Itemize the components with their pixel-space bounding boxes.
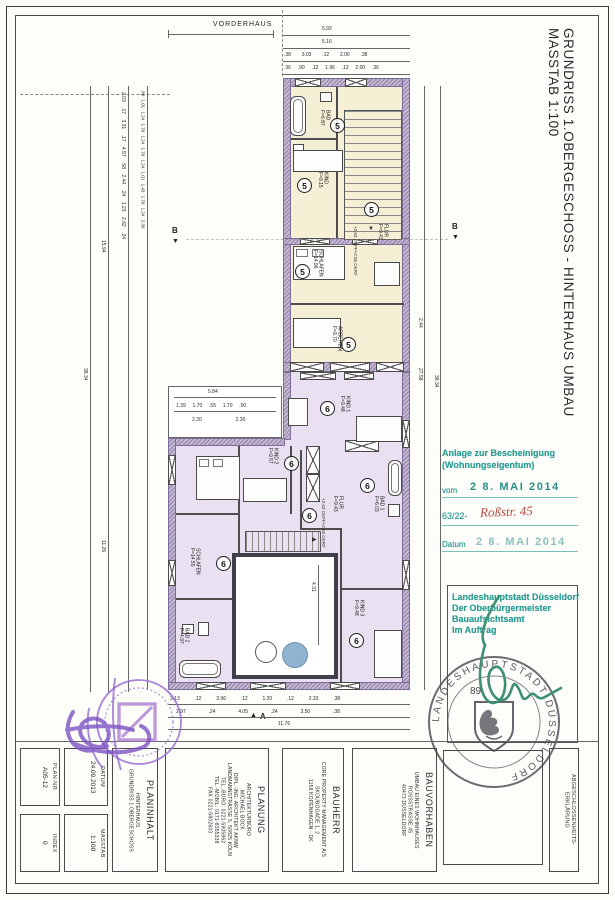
wall-hatch	[300, 372, 336, 380]
titleblock-empty-field	[443, 750, 543, 865]
unit-circle: 6	[349, 633, 364, 648]
dim-right-2: 27.58	[417, 368, 422, 381]
wc-symbol	[198, 622, 209, 636]
datum-date-stamp: 2 8. MAI 2014	[476, 536, 566, 548]
dim-line	[440, 86, 441, 690]
dim-line	[283, 74, 410, 75]
table-symbol	[255, 641, 277, 663]
datum-label: Datum	[442, 540, 466, 549]
bauherr-line: SKOUBOGADE 1, 2	[313, 751, 319, 869]
unit-circle: 5	[330, 118, 345, 133]
bauherr-label: BAUHERR	[331, 751, 341, 869]
stamp-rule	[442, 551, 578, 552]
erklaerung-line: ERKLÄRUNG	[563, 751, 569, 869]
dim-right-total: 38.34	[433, 375, 438, 388]
round-table-symbol	[282, 642, 308, 668]
approval-stamp-line2: (Wohnungseigentum)	[442, 460, 534, 470]
level-note: +2.63 OKFF+2.55 OKRF	[321, 498, 326, 548]
wall-hatch	[402, 560, 410, 590]
dim-line	[90, 86, 91, 692]
section-marker-b-left: B	[172, 226, 178, 235]
wall-hatch	[402, 420, 410, 448]
titleblock-masstab: MASSTAB 1:100	[64, 814, 108, 872]
dim-left-b: 2.03 .17 3.31 .17 4.57 .58 2.44 .24 1.23…	[120, 92, 125, 239]
room-label-schlafen6: SCHLAFENF=14.55	[188, 548, 200, 575]
wall	[168, 438, 285, 446]
room-label-kind3: KIND 3F=9.48	[352, 600, 364, 616]
index-value: 0	[41, 817, 48, 869]
wall-hatch	[330, 682, 360, 690]
void-area	[168, 386, 282, 438]
approval-stamp-line1: Anlage zur Bescheinigung	[442, 448, 555, 458]
titleblock-erklaerung: ABGESCHLOSSENHEITS- ERKLÄRUNG	[549, 748, 579, 872]
room-label-kind2: KIND 2F=9.57	[266, 448, 278, 464]
dim-left-c1: 15.94	[100, 240, 105, 253]
masstab-value: 1:100	[89, 817, 96, 869]
dim-line	[283, 48, 410, 49]
unit-circle: 6	[320, 401, 335, 416]
stair-arrow-icon: ▼	[368, 226, 374, 232]
stair-symbol	[344, 110, 402, 240]
wall-hatch	[168, 560, 176, 586]
room-label-bad5: BADF=6.87	[318, 110, 330, 126]
planung-label: PLANUNG	[256, 751, 266, 869]
bracket-tick	[168, 30, 169, 38]
section-line-b	[186, 239, 448, 240]
unit-circle: 6	[302, 508, 317, 523]
bathtub-symbol	[388, 460, 402, 496]
bed-symbol	[356, 416, 402, 442]
sheet-title-block: GRUNDRISS 1.OBERGESCHOSS - HINTERHAUS UM…	[546, 28, 576, 588]
wall-hatch	[168, 455, 176, 485]
bed-symbol	[196, 456, 240, 500]
pillow-symbol	[213, 459, 223, 467]
wall-hatch	[376, 362, 404, 372]
unit-circle: 5	[341, 337, 356, 352]
wall-hatch	[306, 474, 320, 502]
wall-hatch	[345, 78, 367, 87]
partition	[176, 513, 238, 515]
bauvorhaben-line: UMBAU EINES WOHNHAUSES	[413, 751, 419, 869]
titleblock-index: INDEX 0	[20, 814, 60, 872]
dim-line	[147, 86, 148, 690]
sheet-title: GRUNDRISS 1.OBERGESCHOSS - HINTERHAUS UM…	[561, 28, 576, 588]
partition	[291, 138, 338, 140]
architect-seal	[55, 660, 225, 775]
dim-left-a: .80 1.01 1.24 1.70 1.24 1.70 1.24 1.01 1…	[140, 90, 145, 228]
dim-right-1: 2.44	[417, 318, 422, 328]
bauherr-line: CORE PROPERTY MANAGEMENT A/S	[320, 751, 326, 869]
official-signature	[455, 590, 580, 720]
wall-hatch	[330, 362, 370, 372]
dim-line	[128, 86, 129, 692]
sink-symbol	[320, 92, 332, 102]
wall	[402, 78, 410, 372]
section-arrow-icon: ▼	[172, 238, 179, 245]
dim-bottom-total: 11.76	[278, 722, 290, 727]
room-label-flur5: FLURF=9.43	[376, 224, 388, 240]
dim-courtyard: 4.31	[310, 582, 315, 592]
section-marker-b-right: B	[452, 222, 458, 231]
room-label-schlafen5: SCHLAFENF=14.96	[311, 250, 323, 277]
room-label-kind5: KINDF=9.15	[316, 172, 328, 188]
bathtub-symbol	[290, 96, 306, 136]
file-number: 63/22-	[442, 511, 468, 521]
masstab-label: MASSTAB	[99, 817, 105, 869]
pillow-symbol	[296, 249, 308, 257]
stamp-rule	[442, 497, 578, 498]
dim-line	[174, 411, 276, 412]
bed-symbol	[374, 630, 402, 678]
partition	[340, 588, 402, 590]
vorderhaus-label: VORDERHAUS	[213, 21, 272, 28]
unit-circle: 6	[284, 456, 299, 471]
erklaerung-line: ABGESCHLOSSENHEITS-	[570, 751, 576, 869]
room-label-arbeiten5: ARBEITENF=9.70	[330, 326, 342, 351]
dim-line	[283, 61, 410, 62]
bauherr-line: 1158 KOPENHAGEN - DK	[307, 751, 313, 869]
dim-line	[174, 397, 276, 398]
room-label-kind1: KIND 1F=9.48	[338, 396, 350, 412]
unit-circle: 5	[364, 202, 379, 217]
bed-symbol	[243, 478, 287, 502]
bauvorhaben-label: BAUVORHABEN	[424, 751, 434, 869]
planung-line: LANDMANNSTRASSE 5, 50825 KÖLN	[225, 751, 231, 869]
dim-line	[318, 565, 319, 645]
wall-hatch	[250, 682, 286, 690]
dim-line	[424, 86, 425, 690]
plannr-value: A05-12	[41, 751, 48, 803]
unit-circle: 6	[360, 478, 375, 493]
titleblock-plannr: PLAN-NR. A05-12	[20, 748, 60, 806]
shaft-symbol	[374, 262, 400, 286]
room-label-bad1: BAD 1F=6.03	[372, 496, 384, 512]
wc-symbol	[388, 504, 400, 517]
unit-circle: 6	[216, 556, 231, 571]
level-note: +2.63 OKFF+2.55 OKRF	[353, 226, 358, 276]
vom-label: vom	[442, 486, 457, 495]
planung-line: ARCHITEKTURBÜRO	[245, 751, 251, 869]
titleblock-bauvorhaben: BAUVORHABEN UMBAU EINES WOHNHAUSES ROSSS…	[352, 748, 437, 872]
handwritten-street: Roßstr. 45	[480, 503, 533, 521]
dim-inner-parts2: 2.30 2.30	[192, 418, 245, 423]
dim-inner-total: 5.84	[208, 390, 218, 395]
boundary-dashed-line	[282, 10, 283, 76]
dim-top-2: 5.16	[322, 40, 332, 45]
dim-inner-parts: 1.39 1.70 .55 1.70 .50	[176, 404, 246, 409]
wall-hatch	[344, 372, 374, 380]
unit-circle: 5	[295, 264, 310, 279]
unit-circle: 5	[297, 178, 312, 193]
partition	[340, 528, 342, 682]
scanned-plan-sheet: GRUNDRISS 1.OBERGESCHOSS - HINTERHAUS UM…	[0, 0, 615, 900]
wall-hatch	[295, 78, 321, 87]
planung-line: DIPL.-ING. ARCHITEKT AKNW	[232, 751, 238, 869]
wardrobe-symbol	[288, 398, 308, 426]
pillow-symbol	[199, 459, 209, 467]
bed-symbol	[293, 150, 343, 172]
sheet-scale: MASSTAB 1:100	[546, 28, 561, 588]
stair-arrow-icon: ▶	[312, 536, 317, 543]
architect-signature-scribble	[67, 712, 149, 752]
dim-left-c2: 11.26	[100, 540, 105, 552]
planung-line: MICHAEL BOCK	[238, 751, 244, 869]
section-arrow-icon: ▼	[452, 234, 459, 241]
dim-left-total: 38.34	[82, 368, 87, 381]
room-label-bad2: BAD 2F=4.97	[177, 628, 189, 644]
bracket-tick	[273, 30, 274, 38]
index-label: INDEX	[51, 817, 57, 869]
dim-line	[108, 86, 109, 692]
partition	[291, 303, 404, 305]
bauvorhaben-line: ROSSSTRASSE 45	[406, 751, 412, 869]
titleblock-bauherr: BAUHERR CORE PROPERTY MANAGEMENT A/S SKO…	[282, 748, 344, 872]
wall-hatch	[290, 362, 324, 372]
wall-hatch	[306, 446, 320, 474]
stamp-rule	[442, 525, 578, 526]
vom-date-stamp: 2 8. MAI 2014	[470, 481, 560, 493]
dim-top-3: .38 3.03 .12 2.00 .38	[284, 53, 367, 58]
dim-top-4: .36 .90 .12 1.96 .12 2.00 .36	[284, 66, 379, 71]
dim-line	[283, 35, 410, 36]
vorderhaus-bracket	[168, 34, 274, 35]
room-label-flur6: FLURF=9.43	[331, 496, 343, 512]
partition	[176, 598, 232, 600]
stair-symbol	[245, 531, 321, 552]
bauvorhaben-line: 40473 DÜSSELDORF	[400, 751, 406, 869]
dim-top-total: 5.92	[322, 27, 332, 32]
